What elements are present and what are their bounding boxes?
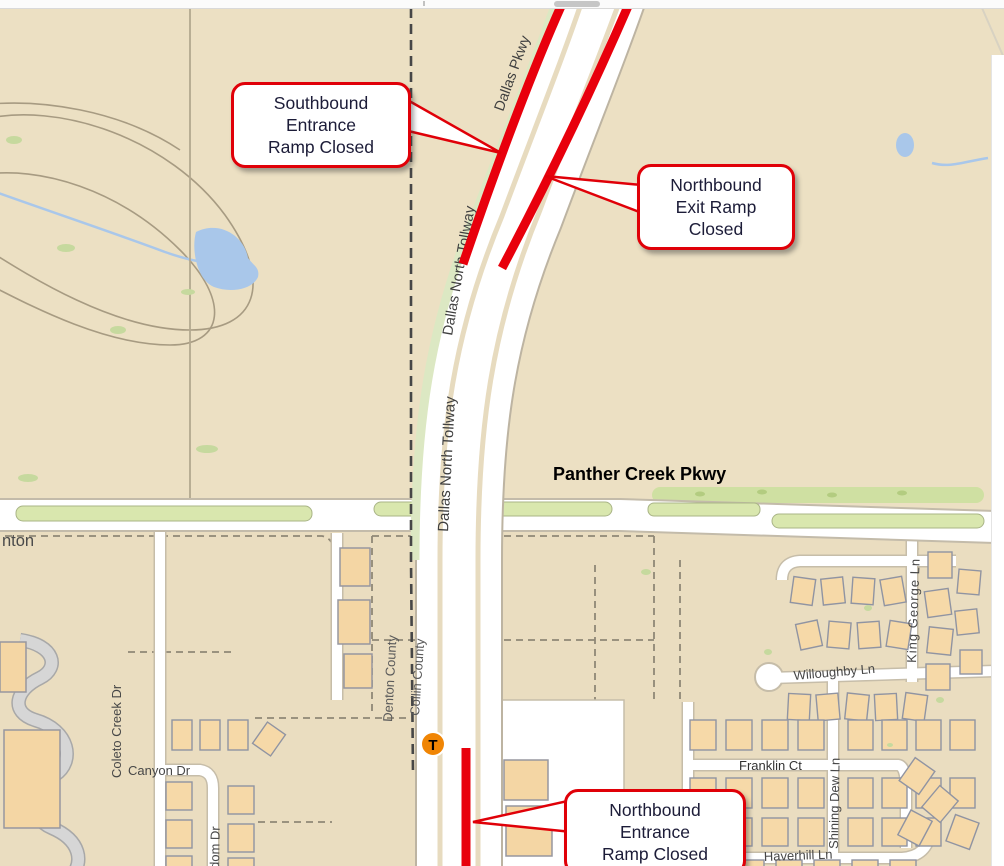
house-footprint xyxy=(821,577,846,605)
house-footprint xyxy=(166,856,192,866)
house-footprint xyxy=(950,720,975,750)
toll-transponder-marker: T xyxy=(420,731,446,757)
house-footprint xyxy=(955,609,979,635)
callout-southbound-entrance-ramp-closed: Southbound Entrance Ramp Closed xyxy=(231,82,411,168)
scrollbar-thumb[interactable] xyxy=(554,1,600,7)
house-footprint xyxy=(796,620,823,650)
house-footprint xyxy=(924,588,951,617)
house-footprint xyxy=(762,818,788,846)
house-footprint xyxy=(880,576,906,605)
top-edge-tick xyxy=(423,1,425,6)
house-footprint xyxy=(798,720,824,750)
franklin-ct-label: Franklin Ct xyxy=(739,758,802,773)
right-gutter[interactable] xyxy=(991,55,1004,866)
house-footprint xyxy=(848,818,873,846)
map-screen: Dallas North Tollway Dallas Pkwy Dallas … xyxy=(0,0,1004,866)
house-footprint xyxy=(902,693,927,722)
house-footprint xyxy=(852,860,878,866)
house-footprint xyxy=(926,664,950,690)
callout-northbound-exit-ramp-closed: Northbound Exit Ramp Closed xyxy=(637,164,795,250)
house-footprint xyxy=(848,720,873,750)
house-footprint xyxy=(957,569,981,595)
house-footprint xyxy=(228,786,254,814)
house-footprint xyxy=(787,693,810,720)
callout-line: Ramp Closed xyxy=(575,843,735,865)
house-footprint xyxy=(845,693,870,721)
house-footprint xyxy=(816,693,840,721)
house-footprint xyxy=(228,858,254,866)
dom-dr-label: dom Dr xyxy=(207,826,223,866)
toll-transponder-letter: T xyxy=(428,737,437,754)
house-footprint xyxy=(916,720,941,750)
house-footprint xyxy=(726,720,752,750)
house-footprint xyxy=(798,818,824,846)
house-footprint xyxy=(762,778,788,808)
house-footprint xyxy=(960,650,982,674)
callout-line: Southbound xyxy=(242,92,400,114)
canyon-dr-label: Canyon Dr xyxy=(128,763,191,778)
haverhill-ln-label: Haverhill Ln xyxy=(764,847,833,864)
callout-line: Northbound xyxy=(575,799,735,821)
house-footprint xyxy=(890,860,916,866)
callout-line: Entrance xyxy=(242,114,400,136)
callout-line: Closed xyxy=(648,218,784,240)
coleto-creek-dr-label: Coleto Creek Dr xyxy=(109,684,124,778)
callout-line: Northbound xyxy=(648,174,784,196)
browser-top-edge xyxy=(0,0,1004,9)
house-footprint xyxy=(851,577,875,604)
callout-line: Ramp Closed xyxy=(242,136,400,158)
denton-partial-label: nton xyxy=(2,532,34,550)
house-footprint xyxy=(882,720,907,750)
house-footprint xyxy=(927,627,954,655)
shining-dew-ln-label: Shining Dew Ln xyxy=(826,758,843,849)
house-footprint xyxy=(690,720,716,750)
house-footprint xyxy=(827,621,851,649)
map-canvas[interactable]: Dallas North Tollway Dallas Pkwy Dallas … xyxy=(0,0,1004,866)
house-footprint xyxy=(857,621,881,648)
house-footprint xyxy=(166,782,192,810)
house-footprint xyxy=(928,552,952,578)
house-footprint xyxy=(798,778,824,808)
house-footprint xyxy=(874,693,897,720)
house-footprint xyxy=(228,720,248,750)
house-footprint xyxy=(848,778,873,808)
house-footprint xyxy=(200,720,220,750)
callout-northbound-entrance-ramp-closed: Northbound Entrance Ramp Closed xyxy=(564,789,746,866)
house-footprint xyxy=(172,720,192,750)
house-footprint xyxy=(790,577,815,606)
callout-line: Entrance xyxy=(575,821,735,843)
house-footprint xyxy=(762,720,788,750)
panther-creek-pkwy-label: Panther Creek Pkwy xyxy=(553,464,726,484)
callout-line: Exit Ramp xyxy=(648,196,784,218)
house-footprint xyxy=(166,820,192,848)
house-footprint xyxy=(228,824,254,852)
